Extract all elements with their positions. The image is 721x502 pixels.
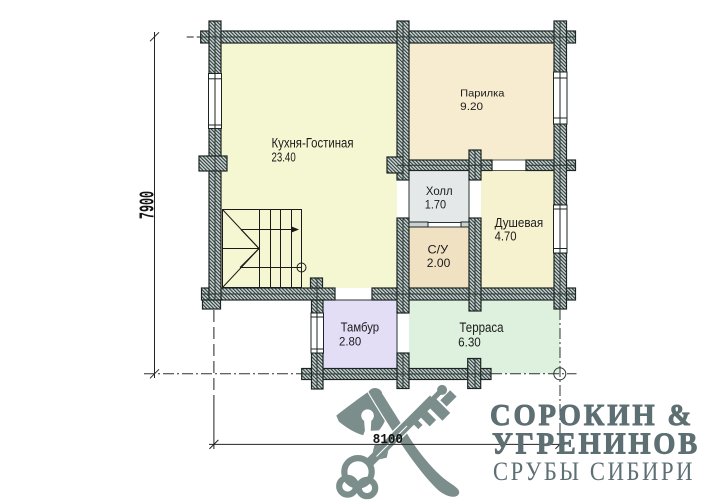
svg-text:9.20: 9.20: [460, 101, 483, 113]
svg-text:СРУБЫ СИБИРИ: СРУБЫ СИБИРИ: [493, 456, 695, 486]
svg-text:2.00: 2.00: [427, 256, 451, 270]
svg-text:Холл: Холл: [426, 184, 453, 198]
svg-text:Душевая: Душевая: [495, 215, 544, 230]
svg-text:4.70: 4.70: [495, 229, 517, 243]
svg-text:Тамбур: Тамбур: [341, 320, 380, 335]
svg-text:С/У: С/У: [428, 242, 449, 256]
svg-text:Терраса: Терраса: [459, 320, 504, 335]
svg-text:1.70: 1.70: [425, 198, 447, 212]
svg-text:8100: 8100: [373, 432, 403, 448]
svg-text:Парилка: Парилка: [460, 89, 504, 100]
svg-text:2.80: 2.80: [339, 334, 361, 348]
svg-text:7900: 7900: [137, 191, 160, 219]
svg-text:23.40: 23.40: [272, 149, 296, 164]
svg-text:Кухня-Гостиная: Кухня-Гостиная: [272, 136, 354, 151]
svg-text:6.30: 6.30: [458, 335, 481, 350]
